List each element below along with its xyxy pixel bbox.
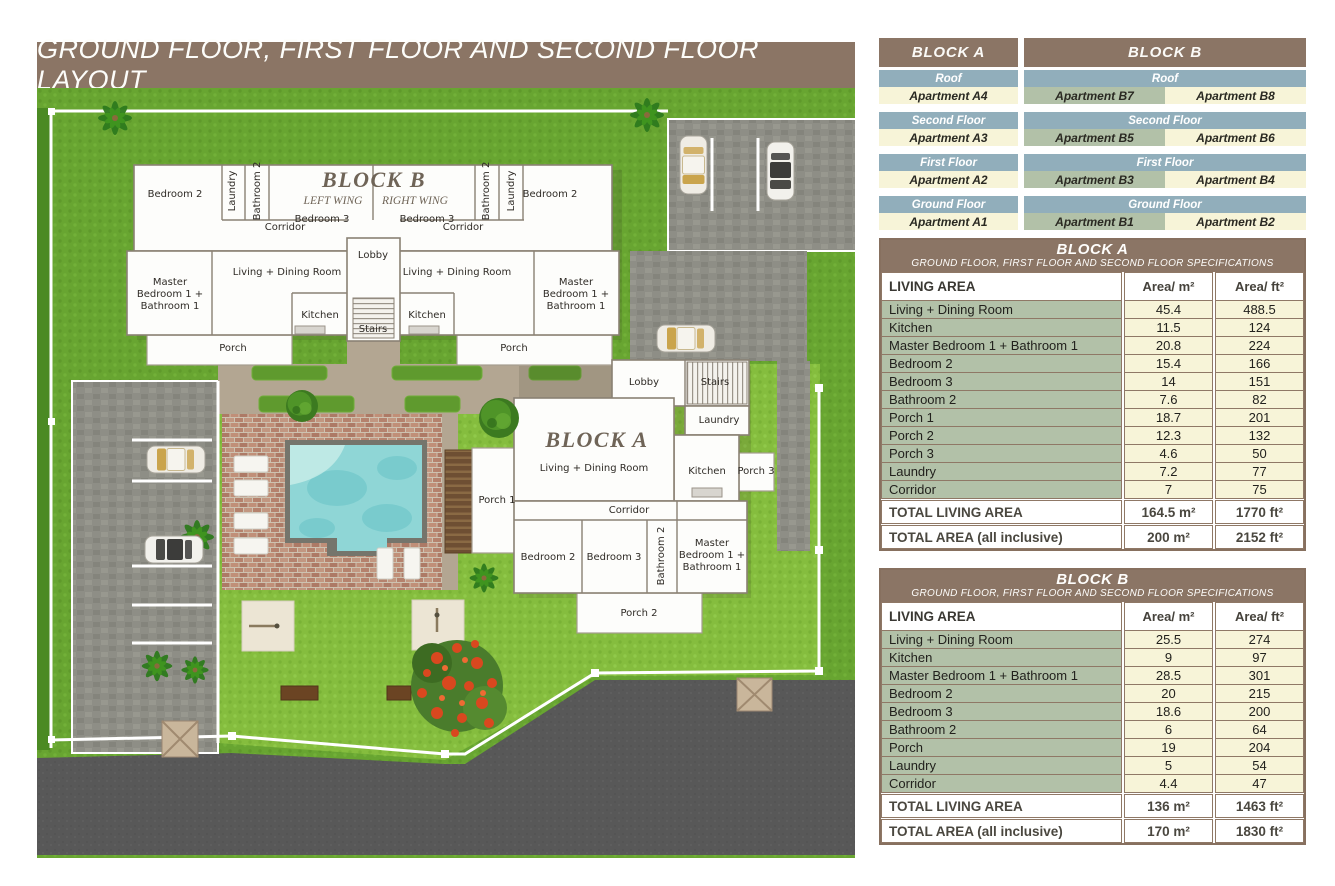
- floor-group: Ground Floor Apartment B1 Apartment B2: [1024, 196, 1306, 230]
- hedge-strip: [37, 108, 50, 750]
- spec-row: Laundry7.277: [881, 462, 1304, 481]
- cell: 132: [1215, 426, 1304, 445]
- cell: 170 m²: [1124, 819, 1213, 843]
- spec-row: Bedroom 318.6200: [881, 702, 1304, 721]
- spec-column-headers: LIVING AREA Area/ m² Area/ ft²: [881, 272, 1304, 301]
- room-label-kitchen: Kitchen: [408, 310, 446, 322]
- cell: Kitchen: [881, 318, 1122, 337]
- column-header: LIVING AREA: [881, 602, 1122, 631]
- cell: 97: [1215, 648, 1304, 667]
- cell: TOTAL LIVING AREA: [881, 794, 1122, 818]
- cell: 54: [1215, 756, 1304, 775]
- cell: 7.2: [1124, 462, 1213, 481]
- room-label-porch: Porch: [219, 343, 247, 355]
- pool: [285, 440, 427, 556]
- apartment-cell: Apartment B6: [1165, 129, 1306, 146]
- spec-title: BLOCK B: [881, 572, 1304, 588]
- cell: 11.5: [1124, 318, 1213, 337]
- apartment-cell: Apartment B3: [1024, 171, 1165, 188]
- floor-group: First Floor Apartment A2: [879, 154, 1018, 188]
- room-label-bathroom2: Bathroom 2: [656, 527, 668, 586]
- floor-bar: Ground Floor: [879, 196, 1018, 213]
- cell: 151: [1215, 372, 1304, 391]
- apartment-cell: Apartment B7: [1024, 87, 1165, 104]
- column-header: Area/ m²: [1124, 602, 1213, 631]
- room-label-porch1: Porch 1: [478, 495, 515, 507]
- apartment-cell: Apartment B8: [1165, 87, 1306, 104]
- block-a-plan-title: BLOCK A: [545, 427, 648, 453]
- block-b-header: BLOCK B: [1024, 38, 1306, 67]
- cell: 200: [1215, 702, 1304, 721]
- cell: 47: [1215, 774, 1304, 793]
- floors-block-b: BLOCK B Roof Apartment B7 Apartment B8 S…: [1024, 38, 1306, 230]
- cell: Porch 1: [881, 408, 1122, 427]
- floor-bar: First Floor: [879, 154, 1018, 171]
- cell: Master Bedroom 1 + Bathroom 1: [881, 336, 1122, 355]
- floor-bar: Second Floor: [879, 112, 1018, 129]
- floor-group: Second Floor Apartment A3: [879, 112, 1018, 146]
- cell: 1770 ft²: [1215, 500, 1304, 524]
- apartment-cell: Apartment A4: [879, 87, 1018, 104]
- cell: 301: [1215, 666, 1304, 685]
- cell: 5: [1124, 756, 1213, 775]
- cell: Bedroom 2: [881, 354, 1122, 373]
- apartment-cell: Apartment B2: [1165, 213, 1306, 230]
- apartment-cell: Apartment B5: [1024, 129, 1165, 146]
- floor-group: First Floor Apartment B3 Apartment B4: [1024, 154, 1306, 188]
- spec-row: Living + Dining Room25.5274: [881, 630, 1304, 649]
- column-header: Area/ ft²: [1215, 602, 1304, 631]
- room-label-stairs: Stairs: [701, 377, 730, 389]
- spec-row: Porch 212.3132: [881, 426, 1304, 445]
- spec-row: Porch19204: [881, 738, 1304, 757]
- floor-bar: First Floor: [1024, 154, 1306, 171]
- apartment-cell: Apartment A3: [879, 129, 1018, 146]
- cell: 166: [1215, 354, 1304, 373]
- cell: Kitchen: [881, 648, 1122, 667]
- spec-table-block-b: BLOCK B GROUND FLOOR, FIRST FLOOR AND SE…: [879, 568, 1306, 845]
- floor-bar: Second Floor: [1024, 112, 1306, 129]
- cell: 4.6: [1124, 444, 1213, 463]
- cell: 28.5: [1124, 666, 1213, 685]
- floors-block-a: BLOCK A Roof Apartment A4 Second Floor A…: [879, 38, 1018, 230]
- cell: 7.6: [1124, 390, 1213, 409]
- cell: 12.3: [1124, 426, 1213, 445]
- room-label-master: Master Bedroom 1 + Bathroom 1: [137, 277, 203, 313]
- cell: 6: [1124, 720, 1213, 739]
- cell: Laundry: [881, 462, 1122, 481]
- room-label-porch3: Porch 3: [737, 466, 774, 478]
- cell: 274: [1215, 630, 1304, 649]
- spec-subtitle: GROUND FLOOR, FIRST FLOOR AND SECOND FLO…: [881, 258, 1304, 269]
- floor-group: Ground Floor Apartment A1: [879, 196, 1018, 230]
- room-label-kitchen: Kitchen: [301, 310, 339, 322]
- column-header: LIVING AREA: [881, 272, 1122, 301]
- cell: 1463 ft²: [1215, 794, 1304, 818]
- spec-rows: Living + Dining Room25.5274Kitchen997Mas…: [881, 631, 1304, 793]
- cell: 136 m²: [1124, 794, 1213, 818]
- spec-total-row: TOTAL LIVING AREA136 m²1463 ft²: [881, 794, 1304, 818]
- cell: 14: [1124, 372, 1213, 391]
- cell: 18.6: [1124, 702, 1213, 721]
- cell: 15.4: [1124, 354, 1213, 373]
- cell: Living + Dining Room: [881, 630, 1122, 649]
- room-label-laundry: Laundry: [699, 415, 740, 427]
- floor-group: Second Floor Apartment B5 Apartment B6: [1024, 112, 1306, 146]
- room-label-porch2: Porch 2: [620, 608, 657, 620]
- floor-group: Roof Apartment A4: [879, 70, 1018, 104]
- cell: 77: [1215, 462, 1304, 481]
- car: [657, 325, 715, 352]
- block-a-building: [472, 360, 774, 633]
- spec-total-row: TOTAL AREA (all inclusive)200 m²2152 ft²: [881, 525, 1304, 549]
- spec-row: Porch 118.7201: [881, 408, 1304, 427]
- spec-row: Corridor4.447: [881, 774, 1304, 793]
- cell: 75: [1215, 480, 1304, 499]
- room-label-bedroom3: Bedroom 3: [587, 552, 642, 564]
- room-label-living: Living + Dining Room: [233, 267, 341, 279]
- column-header: Area/ ft²: [1215, 272, 1304, 301]
- cell: Living + Dining Room: [881, 300, 1122, 319]
- room-label-bedroom3: Bedroom 3: [295, 214, 350, 226]
- cell: 2152 ft²: [1215, 525, 1304, 549]
- cell: 1830 ft²: [1215, 819, 1304, 843]
- spec-title: BLOCK A: [881, 242, 1304, 258]
- room-label-master: Master Bedroom 1 + Bathroom 1: [543, 277, 609, 313]
- spec-row: Kitchen11.5124: [881, 318, 1304, 337]
- cell: TOTAL AREA (all inclusive): [881, 819, 1122, 843]
- room-label-laundry: Laundry: [227, 171, 239, 212]
- cell: 7: [1124, 480, 1213, 499]
- cell: 64: [1215, 720, 1304, 739]
- cell: 164.5 m²: [1124, 500, 1213, 524]
- apartment-cell: Apartment B1: [1024, 213, 1165, 230]
- spec-row: Porch 34.650: [881, 444, 1304, 463]
- cell: 45.4: [1124, 300, 1213, 319]
- cell: Bedroom 3: [881, 702, 1122, 721]
- cell: 201: [1215, 408, 1304, 427]
- right-wing-label: RIGHT WING: [382, 195, 448, 209]
- cell: 4.4: [1124, 774, 1213, 793]
- cell: 204: [1215, 738, 1304, 757]
- room-label-bedroom2: Bedroom 2: [521, 552, 576, 564]
- spec-totals: TOTAL LIVING AREA136 m²1463 ft²TOTAL ARE…: [881, 793, 1304, 843]
- cell: 82: [1215, 390, 1304, 409]
- room-label-kitchen: Kitchen: [688, 466, 726, 478]
- room-label-lobby: Lobby: [358, 250, 388, 262]
- spec-row: Kitchen997: [881, 648, 1304, 667]
- spec-subtitle: GROUND FLOOR, FIRST FLOOR AND SECOND FLO…: [881, 588, 1304, 599]
- spec-header: BLOCK B GROUND FLOOR, FIRST FLOOR AND SE…: [881, 570, 1304, 602]
- cell: Porch 3: [881, 444, 1122, 463]
- room-label-bedroom3: Bedroom 3: [400, 214, 455, 226]
- pergola: [445, 450, 472, 553]
- car: [767, 142, 794, 200]
- cell: Bedroom 3: [881, 372, 1122, 391]
- spec-row: Master Bedroom 1 + Bathroom 120.8224: [881, 336, 1304, 355]
- room-label-bedroom2: Bedroom 2: [148, 189, 203, 201]
- spec-row: Bedroom 220215: [881, 684, 1304, 703]
- cell: Master Bedroom 1 + Bathroom 1: [881, 666, 1122, 685]
- room-label-bedroom2: Bedroom 2: [523, 189, 578, 201]
- spec-row: Bedroom 314151: [881, 372, 1304, 391]
- spec-column-headers: LIVING AREA Area/ m² Area/ ft²: [881, 602, 1304, 631]
- room-label-lobby: Lobby: [629, 377, 659, 389]
- floor-bar: Roof: [1024, 70, 1306, 87]
- apartment-cell: Apartment A2: [879, 171, 1018, 188]
- spec-row: Living + Dining Room45.4488.5: [881, 300, 1304, 319]
- room-label-master: Master Bedroom 1 + Bathroom 1: [679, 538, 745, 574]
- cell: Bathroom 2: [881, 390, 1122, 409]
- spec-row: Laundry554: [881, 756, 1304, 775]
- cell: 224: [1215, 336, 1304, 355]
- cell: TOTAL LIVING AREA: [881, 500, 1122, 524]
- block-a-header: BLOCK A: [879, 38, 1018, 67]
- spec-row: Bathroom 2664: [881, 720, 1304, 739]
- car: [145, 536, 203, 563]
- cell: 488.5: [1215, 300, 1304, 319]
- room-label-living: Living + Dining Room: [403, 267, 511, 279]
- cell: 19: [1124, 738, 1213, 757]
- cell: 9: [1124, 648, 1213, 667]
- room-label-corridor: Corridor: [609, 505, 650, 517]
- room-label-bathroom2: Bathroom 2: [481, 162, 493, 221]
- cell: 18.7: [1124, 408, 1213, 427]
- spec-table-block-a: BLOCK A GROUND FLOOR, FIRST FLOOR AND SE…: [879, 238, 1306, 551]
- driveway-side-strip: [777, 361, 810, 551]
- room-label-living: Living + Dining Room: [540, 463, 648, 475]
- page-title: GROUND FLOOR, FIRST FLOOR AND SECOND FLO…: [37, 42, 855, 88]
- site-plan: BLOCK B LEFT WING RIGHT WING Bedroom 2 B…: [37, 88, 855, 858]
- cell: 20: [1124, 684, 1213, 703]
- cell: Corridor: [881, 480, 1122, 499]
- cell: Porch 2: [881, 426, 1122, 445]
- car: [680, 136, 707, 194]
- apartment-cell: Apartment B4: [1165, 171, 1306, 188]
- room-label-bathroom2: Bathroom 2: [252, 162, 264, 221]
- apartment-cell: Apartment A1: [879, 213, 1018, 230]
- cell: Bathroom 2: [881, 720, 1122, 739]
- page: GROUND FLOOR, FIRST FLOOR AND SECOND FLO…: [0, 0, 1335, 886]
- room-label-stairs: Stairs: [359, 324, 388, 336]
- apartments-table: BLOCK A Roof Apartment A4 Second Floor A…: [879, 38, 1306, 230]
- cell: 50: [1215, 444, 1304, 463]
- spec-header: BLOCK A GROUND FLOOR, FIRST FLOOR AND SE…: [881, 240, 1304, 272]
- floor-bar: Ground Floor: [1024, 196, 1306, 213]
- floor-bar: Roof: [879, 70, 1018, 87]
- floor-group: Roof Apartment B7 Apartment B8: [1024, 70, 1306, 104]
- cell: Laundry: [881, 756, 1122, 775]
- cell: Corridor: [881, 774, 1122, 793]
- spec-totals: TOTAL LIVING AREA164.5 m²1770 ft²TOTAL A…: [881, 499, 1304, 549]
- cell: Porch: [881, 738, 1122, 757]
- cell: Bedroom 2: [881, 684, 1122, 703]
- spec-total-row: TOTAL LIVING AREA164.5 m²1770 ft²: [881, 500, 1304, 524]
- spec-row: Corridor775: [881, 480, 1304, 499]
- cell: 200 m²: [1124, 525, 1213, 549]
- column-header: Area/ m²: [1124, 272, 1213, 301]
- spec-row: Bedroom 215.4166: [881, 354, 1304, 373]
- cell: 20.8: [1124, 336, 1213, 355]
- spec-rows: Living + Dining Room45.4488.5Kitchen11.5…: [881, 301, 1304, 499]
- room-label-porch: Porch: [500, 343, 528, 355]
- spec-row: Master Bedroom 1 + Bathroom 128.5301: [881, 666, 1304, 685]
- block-b-plan-title: BLOCK B: [322, 167, 426, 193]
- cell: 25.5: [1124, 630, 1213, 649]
- car: [147, 446, 205, 473]
- spec-row: Bathroom 27.682: [881, 390, 1304, 409]
- left-wing-label: LEFT WING: [304, 195, 363, 209]
- cell: 124: [1215, 318, 1304, 337]
- cell: TOTAL AREA (all inclusive): [881, 525, 1122, 549]
- spec-total-row: TOTAL AREA (all inclusive)170 m²1830 ft²: [881, 819, 1304, 843]
- cell: 215: [1215, 684, 1304, 703]
- room-label-laundry: Laundry: [506, 171, 518, 212]
